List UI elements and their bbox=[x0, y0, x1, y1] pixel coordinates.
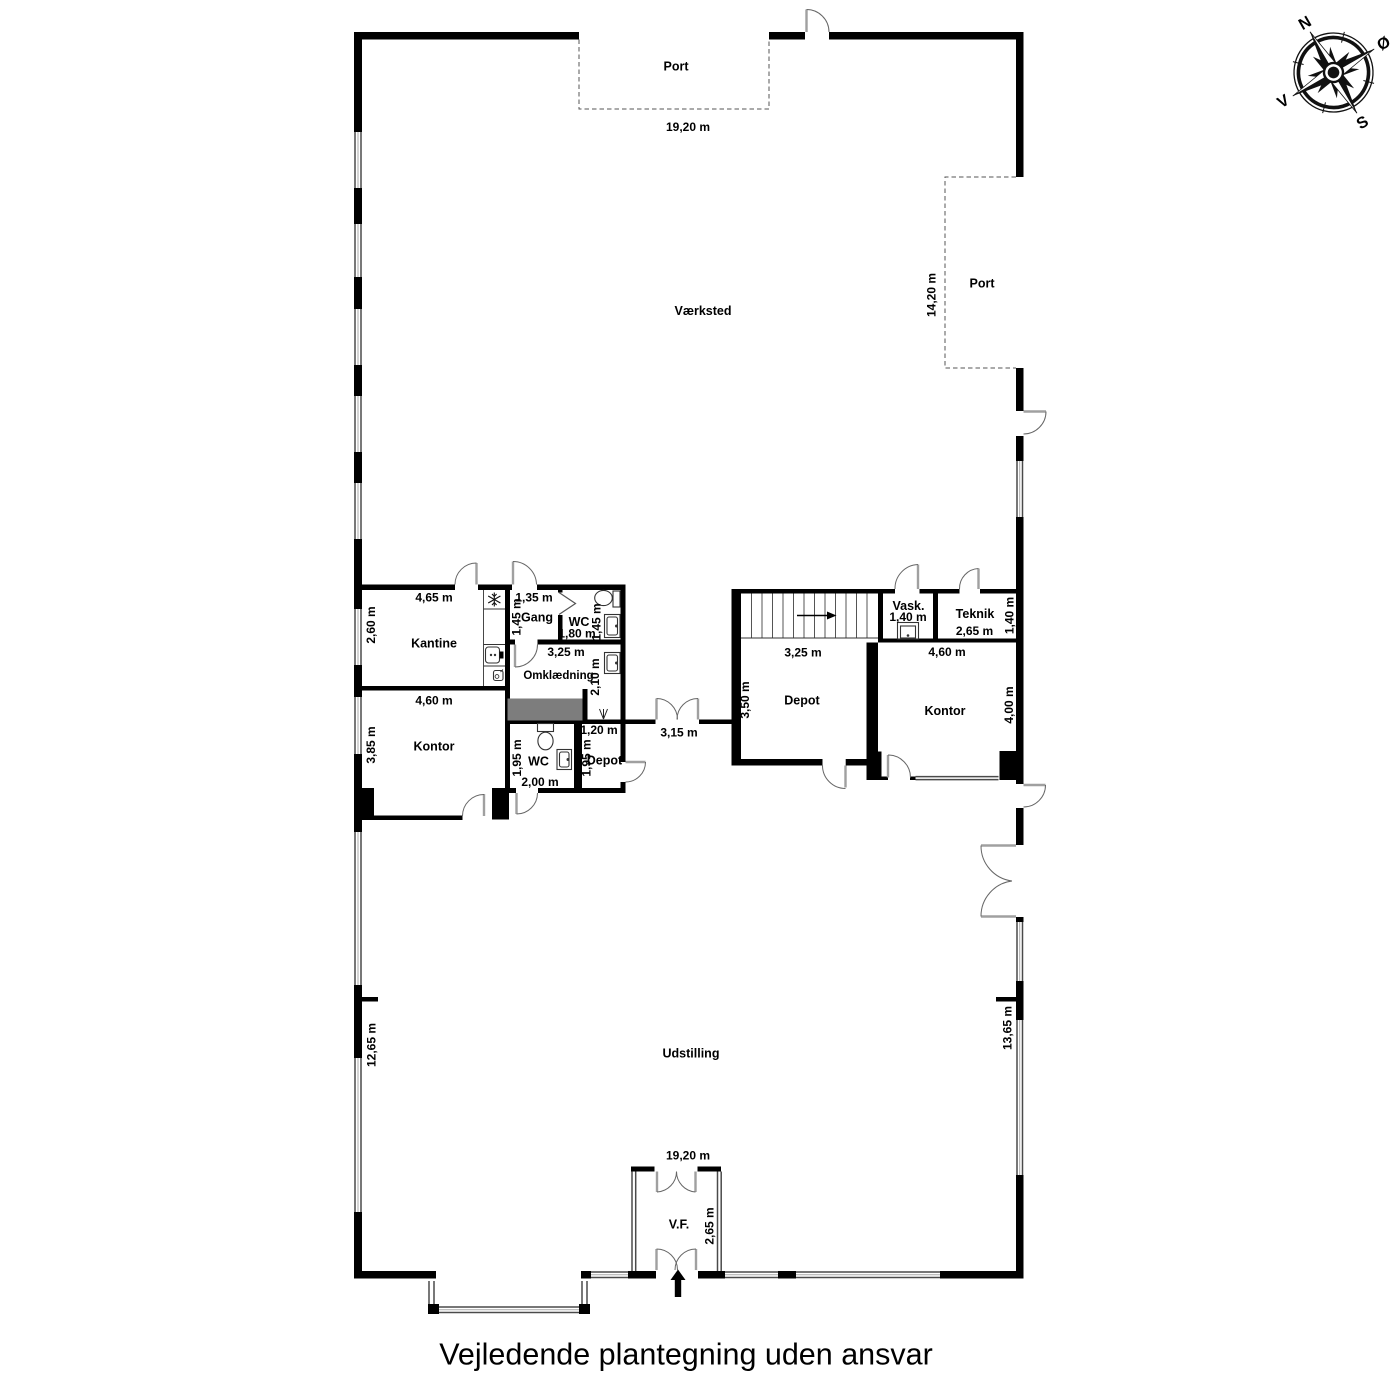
svg-text:Værksted: Værksted bbox=[675, 304, 732, 318]
svg-text:2,65 m: 2,65 m bbox=[703, 1207, 717, 1244]
svg-text:Udstilling: Udstilling bbox=[663, 1047, 720, 1061]
svg-text:14,20 m: 14,20 m bbox=[925, 273, 939, 317]
svg-text:2,60 m: 2,60 m bbox=[364, 606, 378, 643]
svg-text:12,65 m: 12,65 m bbox=[365, 1023, 379, 1067]
svg-text:13,65 m: 13,65 m bbox=[1001, 1006, 1015, 1050]
svg-text:Port: Port bbox=[970, 277, 996, 291]
svg-text:1,95 m: 1,95 m bbox=[510, 739, 524, 776]
svg-text:4,00 m: 4,00 m bbox=[1002, 686, 1016, 723]
svg-text:19,20 m: 19,20 m bbox=[666, 120, 710, 134]
svg-text:Kontor: Kontor bbox=[925, 704, 966, 718]
svg-text:WC: WC bbox=[528, 755, 549, 769]
svg-text:3,25 m: 3,25 m bbox=[547, 645, 584, 659]
svg-text:2,10 m: 2,10 m bbox=[588, 658, 602, 695]
svg-text:Depot: Depot bbox=[784, 694, 820, 708]
svg-text:Kantine: Kantine bbox=[411, 637, 457, 651]
svg-text:3,15 m: 3,15 m bbox=[660, 726, 697, 740]
svg-text:1,95 m: 1,95 m bbox=[580, 739, 594, 776]
svg-text:2,00 m: 2,00 m bbox=[521, 775, 558, 789]
svg-text:4,60 m: 4,60 m bbox=[928, 645, 965, 659]
svg-text:Vejledende plantegning uden an: Vejledende plantegning uden ansvar bbox=[439, 1338, 933, 1372]
svg-text:19,20 m: 19,20 m bbox=[666, 1149, 710, 1163]
svg-text:1,40 m: 1,40 m bbox=[889, 610, 926, 624]
svg-text:4,60 m: 4,60 m bbox=[415, 694, 452, 708]
svg-text:Port: Port bbox=[664, 60, 690, 74]
svg-text:Omklædning: Omklædning bbox=[523, 670, 593, 682]
svg-text:4,65 m: 4,65 m bbox=[415, 591, 452, 605]
svg-text:Gang: Gang bbox=[521, 611, 553, 625]
svg-text:1,20 m: 1,20 m bbox=[580, 723, 617, 737]
svg-text:3,25 m: 3,25 m bbox=[784, 646, 821, 660]
svg-text:1,45 m: 1,45 m bbox=[590, 603, 604, 640]
svg-text:3,85 m: 3,85 m bbox=[364, 726, 378, 763]
svg-text:Teknik: Teknik bbox=[956, 607, 995, 621]
svg-text:1,45 m: 1,45 m bbox=[510, 598, 524, 635]
svg-text:1,40 m: 1,40 m bbox=[1003, 597, 1017, 634]
svg-text:3,50 m: 3,50 m bbox=[738, 681, 752, 718]
svg-text:2,65 m: 2,65 m bbox=[956, 624, 993, 638]
svg-text:Kontor: Kontor bbox=[414, 740, 455, 754]
svg-text:V.F.: V.F. bbox=[669, 1218, 689, 1232]
